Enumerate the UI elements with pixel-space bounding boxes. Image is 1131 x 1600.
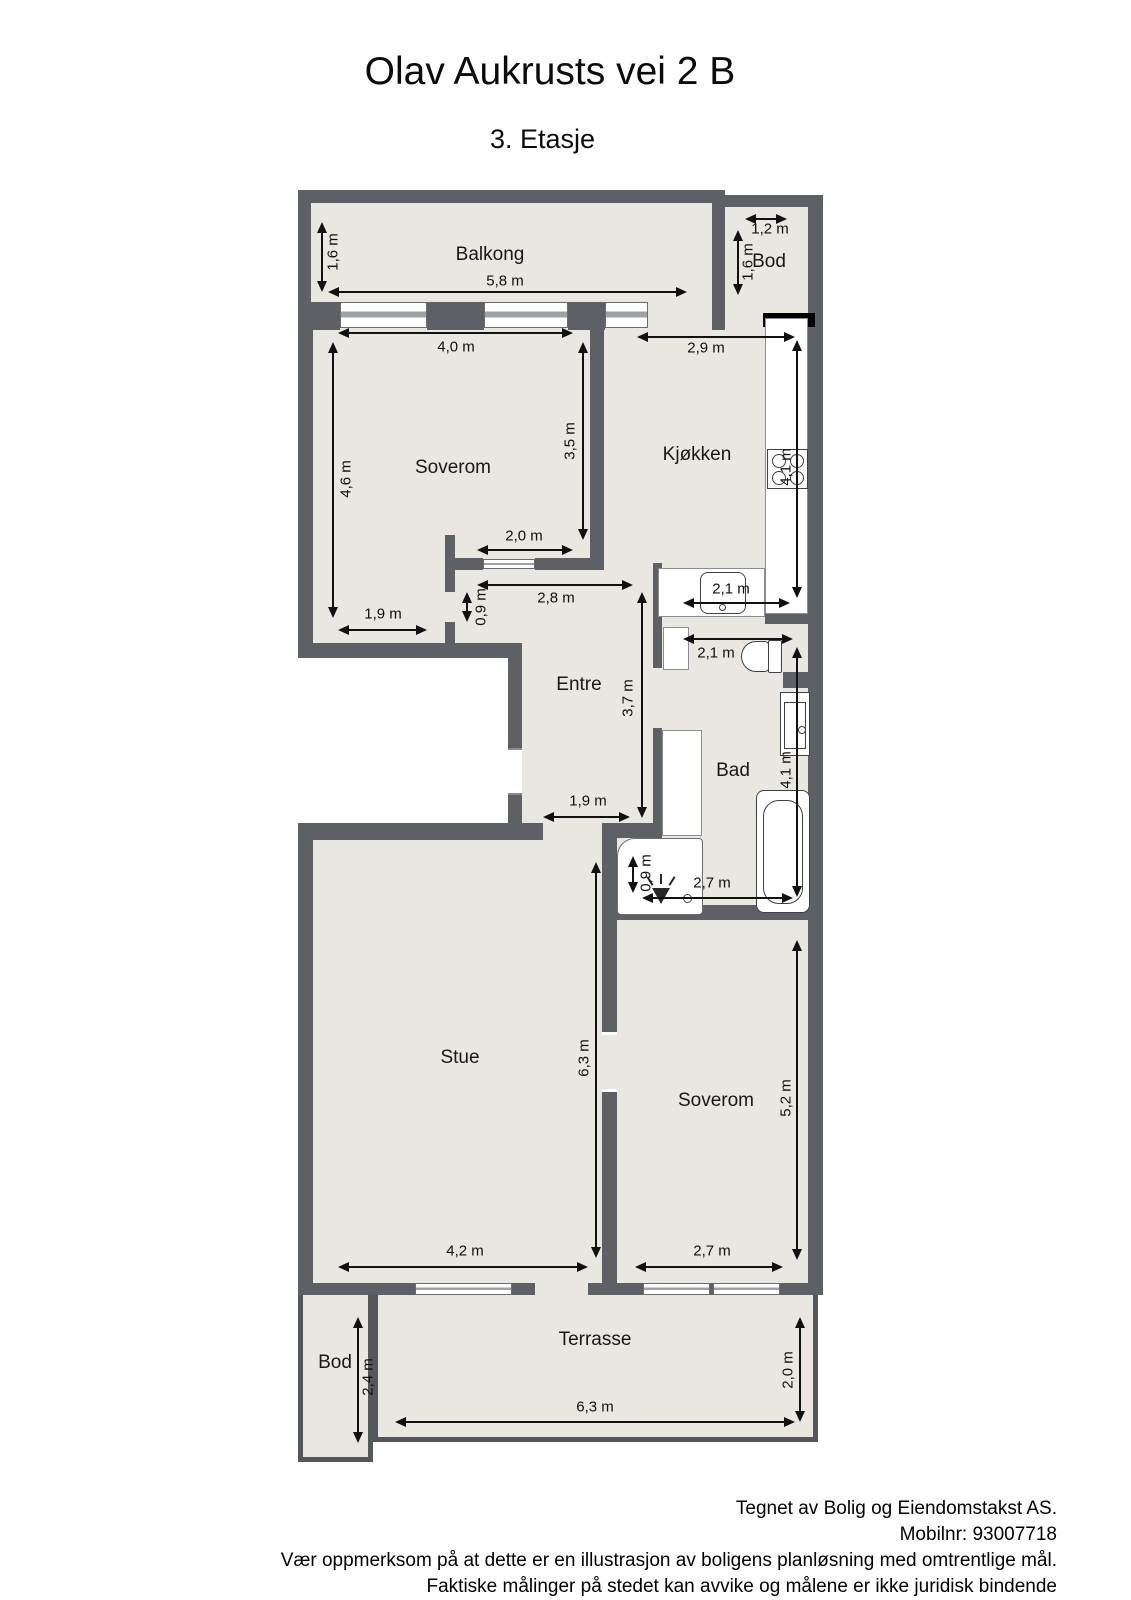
entrance-door xyxy=(508,748,522,795)
dimension-label: 6,3 m xyxy=(576,1039,593,1077)
wall xyxy=(298,1283,415,1295)
wall xyxy=(765,614,811,624)
room-label-entre: Entre xyxy=(556,674,601,696)
arrow-head xyxy=(772,1262,783,1272)
floor-plan: BalkongBodSoveromKjøkkenEntreBadStueSove… xyxy=(0,0,1131,1600)
arrow-head xyxy=(676,287,687,297)
dimension-line xyxy=(402,1421,788,1423)
arrow-head xyxy=(477,580,488,590)
stairwell-area xyxy=(298,658,508,823)
arrow-head xyxy=(328,287,339,297)
bod-bottom-wall xyxy=(298,1457,373,1462)
dimension-label: 4,1 m xyxy=(778,751,795,789)
dimension-label: 1,6 m xyxy=(740,243,757,281)
footer-line: Tegnet av Bolig og Eiendomstakst AS. xyxy=(281,1496,1057,1522)
dimension-line xyxy=(582,349,584,533)
dimension-label: 3,7 m xyxy=(620,679,637,717)
wall xyxy=(617,823,662,838)
room-label-kjokken: Kjøkken xyxy=(663,444,732,466)
dimension-label: 1,9 m xyxy=(364,606,402,623)
dimension-label: 1,2 m xyxy=(751,221,789,238)
terrasse-wall xyxy=(373,1437,818,1442)
arrow-head xyxy=(477,545,488,555)
dimension-line xyxy=(335,291,680,293)
footer-line: Mobilnr: 93007718 xyxy=(281,1522,1057,1548)
arrow-head xyxy=(635,1262,646,1272)
arrow-head xyxy=(792,940,802,951)
dimension-label: 4,2 m xyxy=(446,1243,484,1260)
footer-line: Vær oppmerksom på at dette er en illustr… xyxy=(281,1548,1057,1574)
dimension-line xyxy=(595,869,597,1251)
dimension-label: 1,9 m xyxy=(569,793,607,810)
dimension-label: 6,3 m xyxy=(576,1399,614,1416)
wall xyxy=(780,1283,823,1295)
dimension-line xyxy=(642,1266,776,1268)
window xyxy=(340,302,427,328)
arrow-head xyxy=(782,893,793,903)
wall xyxy=(568,302,605,330)
footer-line: Faktiske målinger på stedet kan avvike o… xyxy=(281,1574,1057,1600)
arrow-head xyxy=(353,1317,363,1328)
shower-head-icon xyxy=(652,888,670,904)
dimension-line xyxy=(321,229,323,285)
vanity-knob-icon xyxy=(798,726,806,734)
arrow-head xyxy=(562,328,573,338)
dimension-line xyxy=(796,654,798,890)
wall xyxy=(298,823,313,1295)
room-label-bad: Bad xyxy=(716,760,750,782)
arrow-head xyxy=(792,647,802,658)
arrow-head xyxy=(338,328,349,338)
arrow-head xyxy=(338,1262,349,1272)
floor-plan-page: Olav Aukrusts vei 2 B 3. Etasje xyxy=(0,0,1131,1600)
arrow-head xyxy=(317,281,327,292)
dimension-line xyxy=(332,349,334,611)
door-frame xyxy=(602,1089,617,1092)
dimension-line xyxy=(345,1266,581,1268)
dimension-line xyxy=(641,599,643,811)
dimension-line xyxy=(649,897,786,899)
wall xyxy=(512,1283,535,1295)
dimension-label: 2,4 m xyxy=(360,1358,377,1396)
room-label-balkong: Balkong xyxy=(456,244,525,266)
footer-disclaimer: Tegnet av Bolig og Eiendomstakst AS. Mob… xyxy=(281,1496,1057,1600)
wall xyxy=(445,558,483,570)
door-frame xyxy=(602,1032,617,1035)
arrow-head xyxy=(628,856,638,867)
arrow-head xyxy=(416,625,427,635)
dimension-line xyxy=(690,602,783,604)
dimension-label: 2,7 m xyxy=(693,1243,731,1260)
bathroom-cabinet-tall xyxy=(662,730,702,836)
arrow-head xyxy=(628,882,638,893)
wall xyxy=(445,622,455,643)
arrow-head xyxy=(733,284,743,295)
arrow-head xyxy=(784,1417,795,1427)
window xyxy=(484,302,568,328)
arrow-head xyxy=(543,812,554,822)
wall xyxy=(535,558,604,570)
dimension-line xyxy=(345,629,420,631)
dimension-label: 3,5 m xyxy=(562,422,579,460)
room-label-stue: Stue xyxy=(440,1047,479,1069)
dimension-label: 2,1 m xyxy=(712,581,750,598)
arrow-head xyxy=(578,529,588,540)
arrow-head xyxy=(683,598,694,608)
arrow-head xyxy=(591,1247,601,1258)
wall xyxy=(298,190,725,203)
arrow-head xyxy=(462,611,472,622)
room-label-bod-top: Bod xyxy=(752,251,786,273)
dimension-line xyxy=(796,947,798,1253)
dimension-label: 0,9 m xyxy=(473,588,490,626)
dimension-label: 0,9 m xyxy=(638,854,655,892)
dimension-label: 2,8 m xyxy=(537,590,575,607)
room-label-bod-bottom: Bod xyxy=(318,1352,352,1374)
wall xyxy=(427,302,484,330)
wall xyxy=(712,195,823,207)
toilet-icon xyxy=(741,641,771,672)
wall xyxy=(712,190,725,330)
arrow-head xyxy=(642,893,653,903)
arrow-head xyxy=(795,1317,805,1328)
dimension-label: 5,8 m xyxy=(486,273,524,290)
faucet-icon xyxy=(719,604,726,611)
arrow-head xyxy=(683,634,694,644)
dimension-line xyxy=(796,347,798,591)
arrow-head xyxy=(338,625,349,635)
window xyxy=(605,302,648,328)
dimension-line xyxy=(690,638,786,640)
wall xyxy=(298,643,522,658)
dimension-label: 4,1 m xyxy=(778,448,795,486)
dimension-line xyxy=(345,332,566,334)
arrow-head xyxy=(562,545,573,555)
wall xyxy=(602,1092,617,1283)
wall xyxy=(508,795,522,823)
dimension-line xyxy=(484,549,566,551)
arrow-head xyxy=(733,230,743,241)
dimension-line xyxy=(484,584,626,586)
wall xyxy=(298,823,543,840)
arrow-head xyxy=(779,598,790,608)
toilet-tank-icon xyxy=(768,640,782,673)
arrow-head xyxy=(328,607,338,618)
shower-spray-icon xyxy=(660,874,662,884)
arrow-head xyxy=(792,340,802,351)
arrow-head xyxy=(792,886,802,897)
room-label-soverom-2: Soverom xyxy=(678,1090,754,1112)
wall xyxy=(298,302,313,658)
dimension-label: 5,2 m xyxy=(778,1079,795,1117)
terrasse-floor xyxy=(378,1295,813,1442)
bod-bottom-wall xyxy=(298,1295,303,1462)
arrow-head xyxy=(578,342,588,353)
arrow-head xyxy=(795,1411,805,1422)
wall xyxy=(298,190,311,313)
arrow-head xyxy=(792,587,802,598)
dimension-label: 1,6 m xyxy=(325,233,342,271)
wall xyxy=(588,1283,643,1295)
wall xyxy=(602,823,617,1035)
arrow-head xyxy=(782,634,793,644)
dimension-line xyxy=(550,816,623,818)
arrow-head xyxy=(577,1262,588,1272)
wall xyxy=(508,658,522,748)
dimension-label: 4,0 m xyxy=(437,339,475,356)
wall xyxy=(808,302,823,1295)
arrow-head xyxy=(462,592,472,603)
arrow-head xyxy=(637,592,647,603)
dimension-line xyxy=(799,1324,801,1415)
wall xyxy=(808,195,823,305)
wall xyxy=(590,313,604,558)
interior-window xyxy=(483,559,535,569)
dimension-label: 2,9 m xyxy=(687,340,725,357)
lower-floor xyxy=(313,823,808,1295)
dimension-label: 2,7 m xyxy=(693,875,731,892)
window xyxy=(643,1283,710,1295)
arrow-head xyxy=(591,862,601,873)
terrasse-wall xyxy=(813,1295,818,1442)
arrow-head xyxy=(317,222,327,233)
wall xyxy=(653,728,662,823)
room-label-soverom-1: Soverom xyxy=(415,457,491,479)
dimension-label: 2,0 m xyxy=(780,1351,797,1389)
arrow-head xyxy=(328,342,338,353)
arrow-head xyxy=(353,1432,363,1443)
arrow-head xyxy=(622,580,633,590)
arrow-head xyxy=(637,807,647,818)
dimension-label: 2,1 m xyxy=(697,645,735,662)
wall xyxy=(298,302,340,330)
dimension-label: 2,0 m xyxy=(505,528,543,545)
dimension-line xyxy=(644,336,788,338)
arrow-head xyxy=(619,812,630,822)
arrow-head xyxy=(792,1249,802,1260)
arrow-head xyxy=(637,332,648,342)
room-label-terrasse: Terrasse xyxy=(559,1329,632,1351)
dimension-label: 4,6 m xyxy=(338,460,355,498)
window xyxy=(415,1283,512,1295)
window xyxy=(713,1283,780,1295)
arrow-head xyxy=(395,1417,406,1427)
